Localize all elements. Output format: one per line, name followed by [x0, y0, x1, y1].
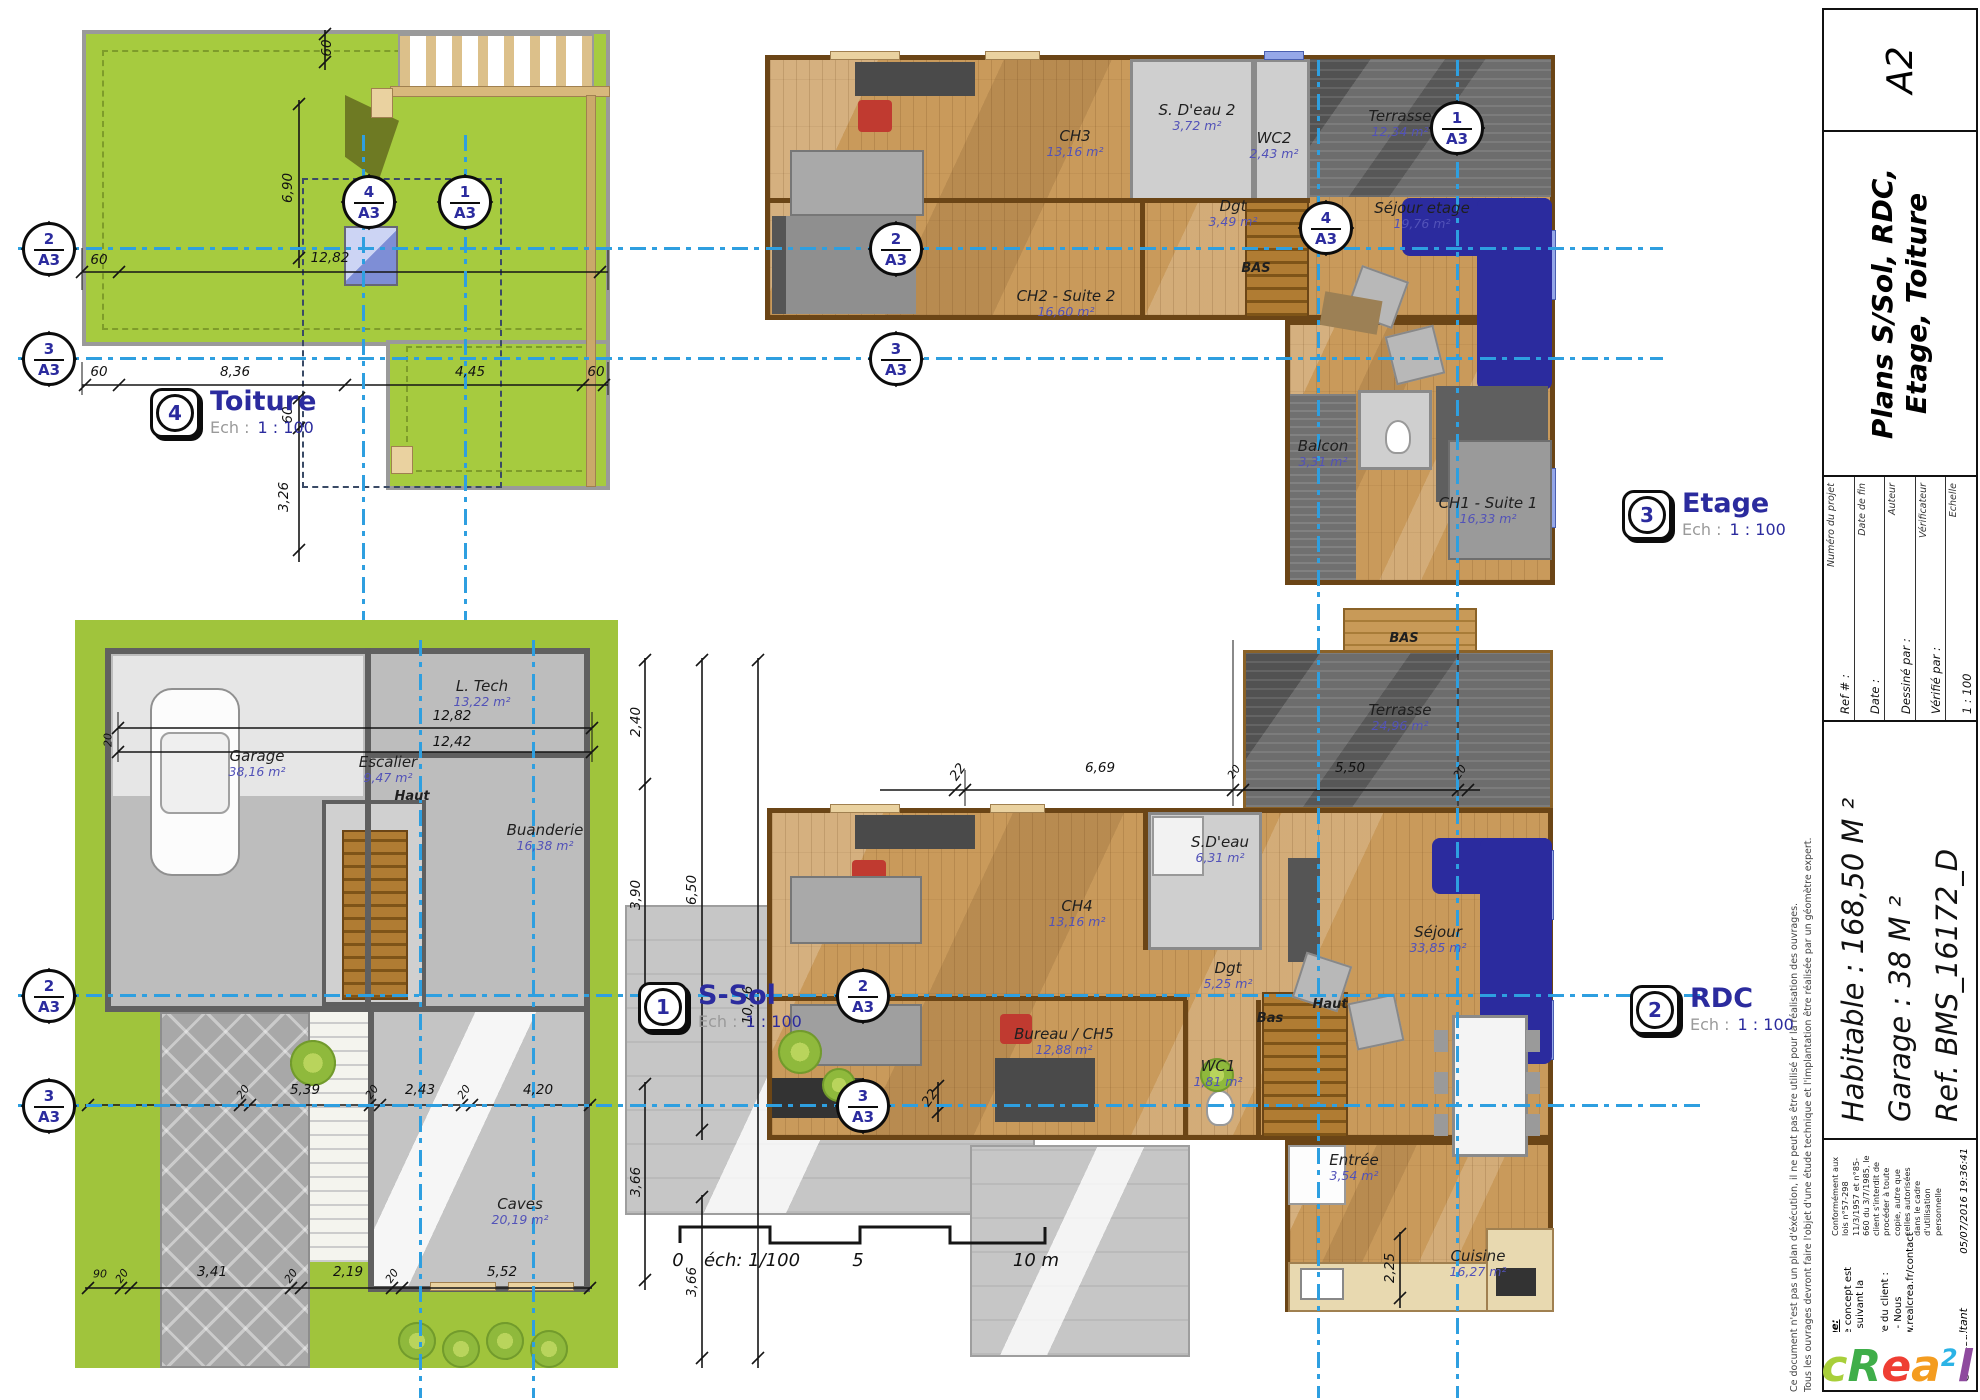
dim-label: 8,36	[220, 364, 250, 380]
scale-value: 1 : 100	[1730, 520, 1786, 539]
field-caption: Auteur	[1887, 483, 1898, 714]
plan-name: S-Sol	[698, 982, 802, 1009]
room-label: WC22,43 m²	[1250, 130, 1299, 161]
dim-label: 5,39	[290, 1082, 320, 1098]
drawing-sheet: 2A3 3A3 4A3 1A3 2A3 3A3 4A3 1A3 2A3 3A3 …	[0, 0, 1980, 1400]
scalebar-five: 5	[852, 1250, 863, 1271]
plan-icon-number: 3	[1628, 496, 1666, 534]
room-area: 1,81 m²	[1194, 1075, 1243, 1089]
section-marker-3-ssol: 3A3	[20, 1077, 78, 1135]
section-line-2-top	[18, 247, 1663, 250]
disclaimer-line-2: Tous les ouvrages devront faire l'objet …	[1802, 8, 1816, 1392]
room-name: Bureau / CH5	[1014, 1025, 1114, 1043]
edge-disclaimer: Ce document n'est pas un plan d'éxécutio…	[1788, 8, 1818, 1392]
room-area: 3,54 m²	[1329, 1169, 1379, 1183]
marker-number: 4	[1311, 210, 1341, 230]
room-area: 20,19 m²	[492, 1213, 549, 1227]
title-block-fields: Numéro du projetRef # : Date de finDate …	[1824, 477, 1976, 720]
room-area: 13,16 m²	[1049, 915, 1106, 929]
room-name: BAS	[1241, 261, 1270, 276]
marker-sheet-ref: A3	[454, 204, 476, 221]
plan-title-etage: 3 EtageEch :1 : 100	[1622, 490, 1786, 540]
room-label: Buanderie16,38 m²	[507, 822, 584, 853]
title-block-title-section: Plans S/Sol, RDC, Etage, Toiture A2	[1824, 10, 1976, 477]
room-area: 12,88 m²	[1014, 1043, 1114, 1057]
room-area: 24,96 m²	[1369, 719, 1432, 733]
scalebar-zero: 0	[672, 1250, 683, 1271]
room-area: 13,16 m²	[1047, 145, 1104, 159]
plan-name: Etage	[1682, 490, 1786, 517]
dim-label: 6,90	[280, 173, 296, 203]
plan-icon: 2	[1630, 985, 1680, 1035]
section-marker-3-etage: 3A3	[867, 330, 925, 388]
plan-icon-number: 4	[156, 394, 194, 432]
room-area: 13,22 m²	[454, 695, 511, 709]
marker-sheet-ref: A3	[38, 251, 60, 268]
section-marker-3-rdc: 3A3	[834, 1077, 892, 1135]
field-value: Date :	[1868, 483, 1882, 714]
room-name: Haut	[1312, 997, 1347, 1012]
room-label: Cuisine16,27 m²	[1450, 1248, 1507, 1279]
room-label: Dgt5,25 m²	[1204, 960, 1253, 991]
room-label: BAS	[1241, 262, 1270, 277]
plan-icon: 4	[150, 388, 200, 438]
room-label: Escalier9,47 m²	[359, 754, 417, 785]
room-label: Balcon3,31 m²	[1298, 438, 1349, 469]
dim-label: 3,90	[628, 880, 644, 910]
dim-label: 3,26	[276, 482, 292, 512]
room-label: Bureau / CH512,88 m²	[1014, 1026, 1114, 1057]
section-line-4-right	[1317, 60, 1320, 1398]
marker-number: 3	[34, 341, 64, 361]
marker-sheet-ref: A3	[852, 998, 874, 1015]
room-name: Garage	[230, 747, 285, 765]
dim-label: 12,82	[311, 250, 350, 266]
dim-label: 60	[90, 252, 107, 268]
section-marker-1-etage: 1A3	[1428, 99, 1486, 157]
room-area: 6,31 m²	[1191, 851, 1249, 865]
room-label: Haut	[1312, 998, 1347, 1013]
disclaimer-line-1: Ce document n'est pas un plan d'éxécutio…	[1788, 8, 1802, 1392]
room-name: Dgt	[1215, 959, 1242, 977]
room-label: BAS	[1389, 632, 1418, 647]
field-value: Ref # :	[1838, 483, 1852, 714]
room-label: Terrasse24,96 m²	[1369, 702, 1432, 733]
marker-sheet-ref: A3	[38, 1108, 60, 1125]
room-area: 3,31 m²	[1298, 455, 1349, 469]
plan-icon: 3	[1622, 490, 1672, 540]
dim-label: 60	[90, 364, 107, 380]
room-name: Entrée	[1329, 1151, 1379, 1169]
room-name: S. D'eau 2	[1159, 101, 1236, 119]
room-name: Dgt	[1220, 197, 1247, 215]
marker-number: 4	[354, 184, 384, 204]
field-row: Date de finDate :	[1855, 477, 1886, 720]
room-name: Terrasse	[1369, 107, 1432, 125]
logo-letter: R	[1847, 1346, 1881, 1388]
title-block: Nota Bene: Ce plan de concept est adapta…	[1822, 8, 1978, 1392]
section-line-3-top	[18, 357, 1663, 360]
room-label: Terrasse12,34 m²	[1369, 108, 1432, 139]
field-row: VérificateurVérifié par :	[1916, 477, 1947, 720]
dimension-lines	[0, 0, 1980, 1400]
room-name: CH1 - Suite 1	[1439, 494, 1538, 512]
dim-label: 3,66	[684, 1267, 700, 1297]
room-name: Balcon	[1298, 437, 1349, 455]
section-line-1-right	[1456, 60, 1459, 1398]
section-marker-4-toiture: 4A3	[340, 173, 398, 231]
field-caption: Numéro du projet	[1826, 483, 1837, 714]
room-name: Terrasse	[1369, 701, 1432, 719]
plan-title-ssol: 1 S-SolEch :1 : 100	[638, 982, 802, 1032]
room-name: CH3	[1059, 127, 1090, 145]
room-area: 12,34 m²	[1369, 125, 1432, 139]
marker-sheet-ref: A3	[38, 998, 60, 1015]
title-block-areas-section: Habitable : 168,50 M ² Garage : 38 M ² R…	[1824, 720, 1976, 1140]
plan-title-toiture: 4 ToitureEch :1 : 100	[150, 388, 316, 438]
field-value: Vérifié par :	[1929, 483, 1943, 714]
plan-name: Toiture	[210, 388, 316, 415]
room-name: Séjour etage	[1374, 199, 1470, 217]
room-label: WC11,81 m²	[1194, 1058, 1243, 1089]
dim-label: 12,42	[433, 734, 472, 750]
marker-number: 1	[450, 184, 480, 204]
scalebar-ech: éch: 1/100	[704, 1250, 800, 1271]
room-label: Bas	[1257, 1012, 1283, 1027]
scalebar-ten: 10 m	[1013, 1250, 1059, 1271]
scale-value: 1 : 100	[258, 418, 314, 437]
plan-name: RDC	[1690, 985, 1794, 1012]
dim-label: 90	[93, 1268, 107, 1281]
room-label: S. D'eau 23,72 m²	[1159, 102, 1236, 133]
room-area: 16,33 m²	[1439, 512, 1538, 526]
garage-area: Garage : 38 M ²	[1883, 738, 1917, 1122]
section-line-1-ssol	[532, 640, 535, 1398]
marker-number: 3	[881, 341, 911, 361]
marker-number: 3	[34, 1088, 64, 1108]
field-row: Numéro du projetRef # :	[1824, 477, 1855, 720]
marker-number: 3	[848, 1088, 878, 1108]
room-label: Haut	[394, 790, 429, 805]
room-area: 5,25 m²	[1204, 977, 1253, 991]
room-name: Escalier	[359, 753, 417, 771]
room-name: BAS	[1389, 631, 1418, 646]
logo-superscript: 2	[1941, 1347, 1958, 1370]
section-marker-2-ssol: 2A3	[20, 967, 78, 1025]
section-marker-4-etage: 4A3	[1297, 199, 1355, 257]
field-caption: Vérificateur	[1918, 483, 1929, 714]
logo-letter: e	[1881, 1346, 1911, 1388]
dim-label: 12,82	[433, 708, 472, 724]
section-marker-3-toiture: 3A3	[20, 330, 78, 388]
room-name: Cuisine	[1451, 1247, 1506, 1265]
dim-label: 5,50	[1335, 760, 1365, 776]
scale-prefix: Ech :	[1690, 1015, 1730, 1034]
room-area: 16,27 m²	[1450, 1265, 1507, 1279]
marker-number: 2	[881, 231, 911, 251]
room-label: S.D'eau6,31 m²	[1191, 834, 1249, 865]
dim-label: 2,43	[405, 1082, 435, 1098]
scale-value: 1 : 100	[746, 1012, 802, 1031]
room-label: Caves20,19 m²	[492, 1196, 549, 1227]
marker-sheet-ref: A3	[852, 1108, 874, 1125]
room-name: Caves	[497, 1195, 543, 1213]
dim-label: 3,66	[628, 1167, 644, 1197]
room-label: CH1 - Suite 116,33 m²	[1439, 495, 1538, 526]
marker-sheet-ref: A3	[1315, 230, 1337, 247]
dim-label: 4,45	[455, 364, 485, 380]
room-label: CH413,16 m²	[1049, 898, 1106, 929]
room-area: 16,38 m²	[507, 839, 584, 853]
logo-letter: l	[1958, 1346, 1973, 1388]
marker-sheet-ref: A3	[38, 361, 60, 378]
field-caption: Echelle	[1948, 483, 1959, 714]
dim-label: 2,19	[333, 1264, 363, 1280]
room-name: WC1	[1201, 1057, 1236, 1075]
room-label: Entrée3,54 m²	[1329, 1152, 1379, 1183]
section-marker-2-rdc: 2A3	[834, 967, 892, 1025]
field-value: 1 : 100	[1960, 483, 1974, 714]
dim-label: 60	[587, 364, 604, 380]
room-label: CH2 - Suite 216,60 m²	[1017, 288, 1116, 319]
title-block-rotated-content: Nota Bene: Ce plan de concept est adapta…	[1824, 10, 1976, 1390]
dim-label: 3,41	[197, 1264, 227, 1280]
room-area: 3,49 m²	[1209, 215, 1258, 229]
room-area: 38,16 m²	[229, 765, 286, 779]
room-label: L. Tech13,22 m²	[454, 678, 511, 709]
marker-number: 2	[34, 978, 64, 998]
logo-letter: c	[1821, 1346, 1847, 1388]
scale-prefix: Ech :	[698, 1012, 738, 1031]
room-label: Séjour33,85 m²	[1410, 924, 1467, 955]
dim-label: 60	[319, 39, 335, 56]
dim-label: 4,20	[523, 1082, 553, 1098]
field-row: Echelle1 : 100	[1946, 477, 1976, 720]
project-reference: Ref. BMS_16172_D	[1930, 738, 1964, 1122]
room-name: Haut	[394, 789, 429, 804]
dim-label: 2,40	[628, 707, 644, 737]
field-row: AuteurDessiné par :	[1885, 477, 1916, 720]
room-name: CH2 - Suite 2	[1017, 287, 1116, 305]
dim-label: 20	[102, 733, 115, 747]
marker-sheet-ref: A3	[885, 251, 907, 268]
field-value: Dessiné par :	[1899, 483, 1913, 714]
room-name: S.D'eau	[1191, 833, 1249, 851]
room-area: 33,85 m²	[1410, 941, 1467, 955]
plan-icon-number: 2	[1636, 991, 1674, 1029]
plan-title-rdc: 2 RDCEch :1 : 100	[1630, 985, 1794, 1035]
sheet-size: A2	[1824, 10, 1976, 132]
section-marker-2-etage: 2A3	[867, 220, 925, 278]
room-label: CH313,16 m²	[1047, 128, 1104, 159]
section-marker-1-toiture: 1A3	[436, 173, 494, 231]
section-marker-2-toiture: 2A3	[20, 220, 78, 278]
print-datetime: 05/07/2016 19:36:41	[1959, 1148, 1970, 1254]
marker-sheet-ref: A3	[358, 204, 380, 221]
marker-number: 2	[848, 978, 878, 998]
dim-label: 6,69	[1085, 760, 1115, 776]
room-label: Garage38,16 m²	[229, 748, 286, 779]
room-area: 19,76 m²	[1374, 217, 1470, 231]
legal-text: Conformément aux lois n°57-298 11/3/1957…	[1830, 1148, 1943, 1236]
marker-number: 2	[34, 231, 64, 251]
dim-label: 6,50	[684, 875, 700, 905]
sheet-title: Plans S/Sol, RDC, Etage, Toiture	[1824, 132, 1976, 475]
dim-label: 2,25	[1382, 1253, 1398, 1283]
marker-number: 1	[1442, 110, 1472, 130]
scale-prefix: Ech :	[210, 418, 250, 437]
room-name: CH4	[1061, 897, 1092, 915]
room-area: 16,60 m²	[1017, 305, 1116, 319]
plan-icon-number: 1	[644, 988, 682, 1026]
room-area: 9,47 m²	[359, 771, 417, 785]
room-area: 3,72 m²	[1159, 119, 1236, 133]
plan-icon: 1	[638, 982, 688, 1032]
scale-prefix: Ech :	[1682, 520, 1722, 539]
section-line-4-ssol	[419, 640, 422, 1398]
crea-logo: cRea2l	[1828, 1332, 1966, 1388]
room-label: Dgt3,49 m²	[1209, 198, 1258, 229]
room-name: WC2	[1257, 129, 1292, 147]
room-name: L. Tech	[456, 677, 508, 695]
habitable-area: Habitable : 168,50 M ²	[1836, 738, 1870, 1122]
marker-sheet-ref: A3	[1446, 130, 1468, 147]
field-caption: Date de fin	[1857, 483, 1868, 714]
room-name: Buanderie	[507, 821, 584, 839]
room-label: Séjour etage19,76 m²	[1374, 200, 1470, 231]
room-area: 2,43 m²	[1250, 147, 1299, 161]
room-name: Séjour	[1414, 923, 1462, 941]
marker-sheet-ref: A3	[885, 361, 907, 378]
room-name: Bas	[1257, 1011, 1283, 1026]
logo-letter: a	[1911, 1346, 1941, 1388]
dim-label: 5,52	[487, 1264, 517, 1280]
scale-value: 1 : 100	[1738, 1015, 1794, 1034]
